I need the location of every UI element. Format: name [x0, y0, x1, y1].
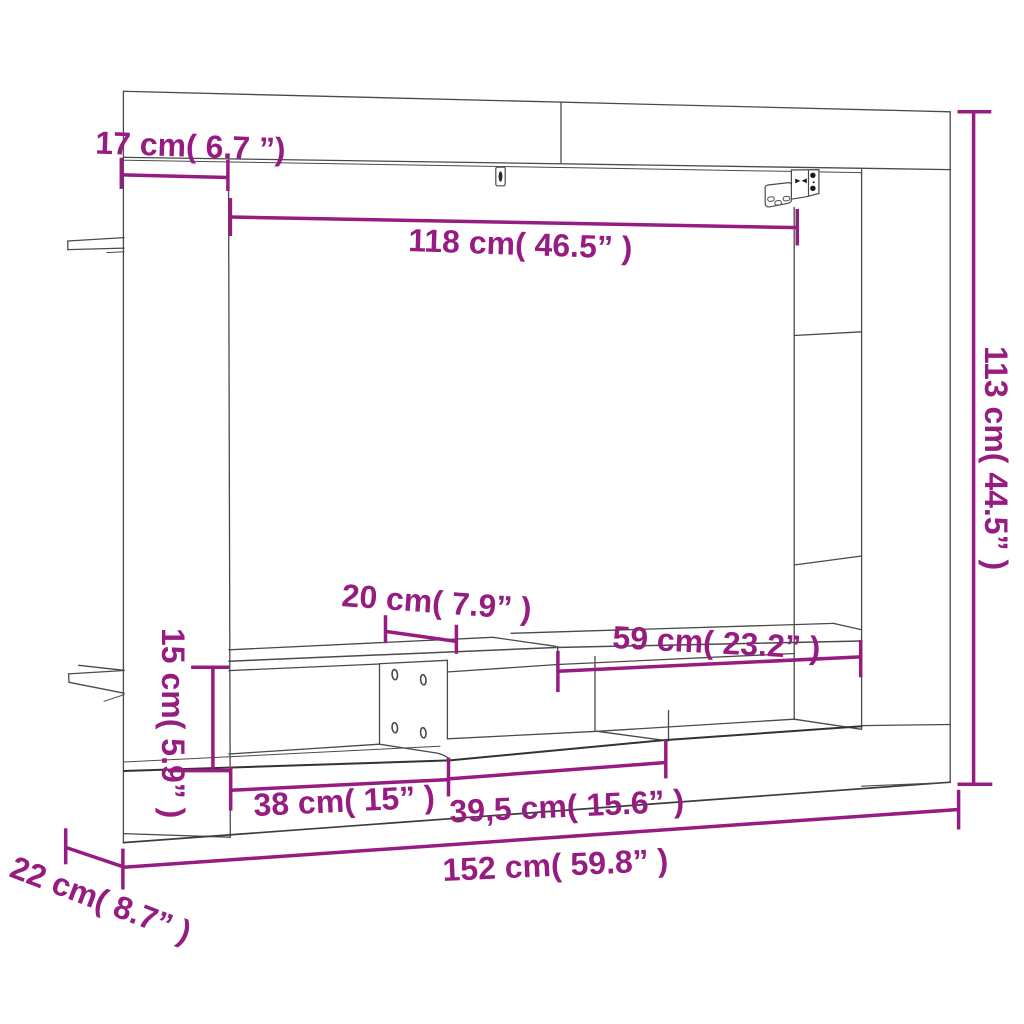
- svg-text:39,5 cm( 15.6” ): 39,5 cm( 15.6” ): [449, 782, 685, 829]
- svg-text:59 cm( 23.2” ): 59 cm( 23.2” ): [612, 619, 822, 666]
- svg-text:17 cm( 6.7 ”): 17 cm( 6.7 ”): [95, 125, 286, 168]
- svg-text:20 cm( 7.9” ): 20 cm( 7.9” ): [340, 577, 532, 627]
- svg-text:15 cm( 5.9” ): 15 cm( 5.9” ): [155, 628, 191, 818]
- svg-text:38 cm( 15” ): 38 cm( 15” ): [253, 778, 436, 823]
- svg-text:118 cm( 46.5” ): 118 cm( 46.5” ): [408, 222, 633, 266]
- svg-text:113 cm( 44.5” ): 113 cm( 44.5” ): [978, 346, 1014, 570]
- svg-text:152 cm( 59.8” ): 152 cm( 59.8” ): [442, 842, 669, 888]
